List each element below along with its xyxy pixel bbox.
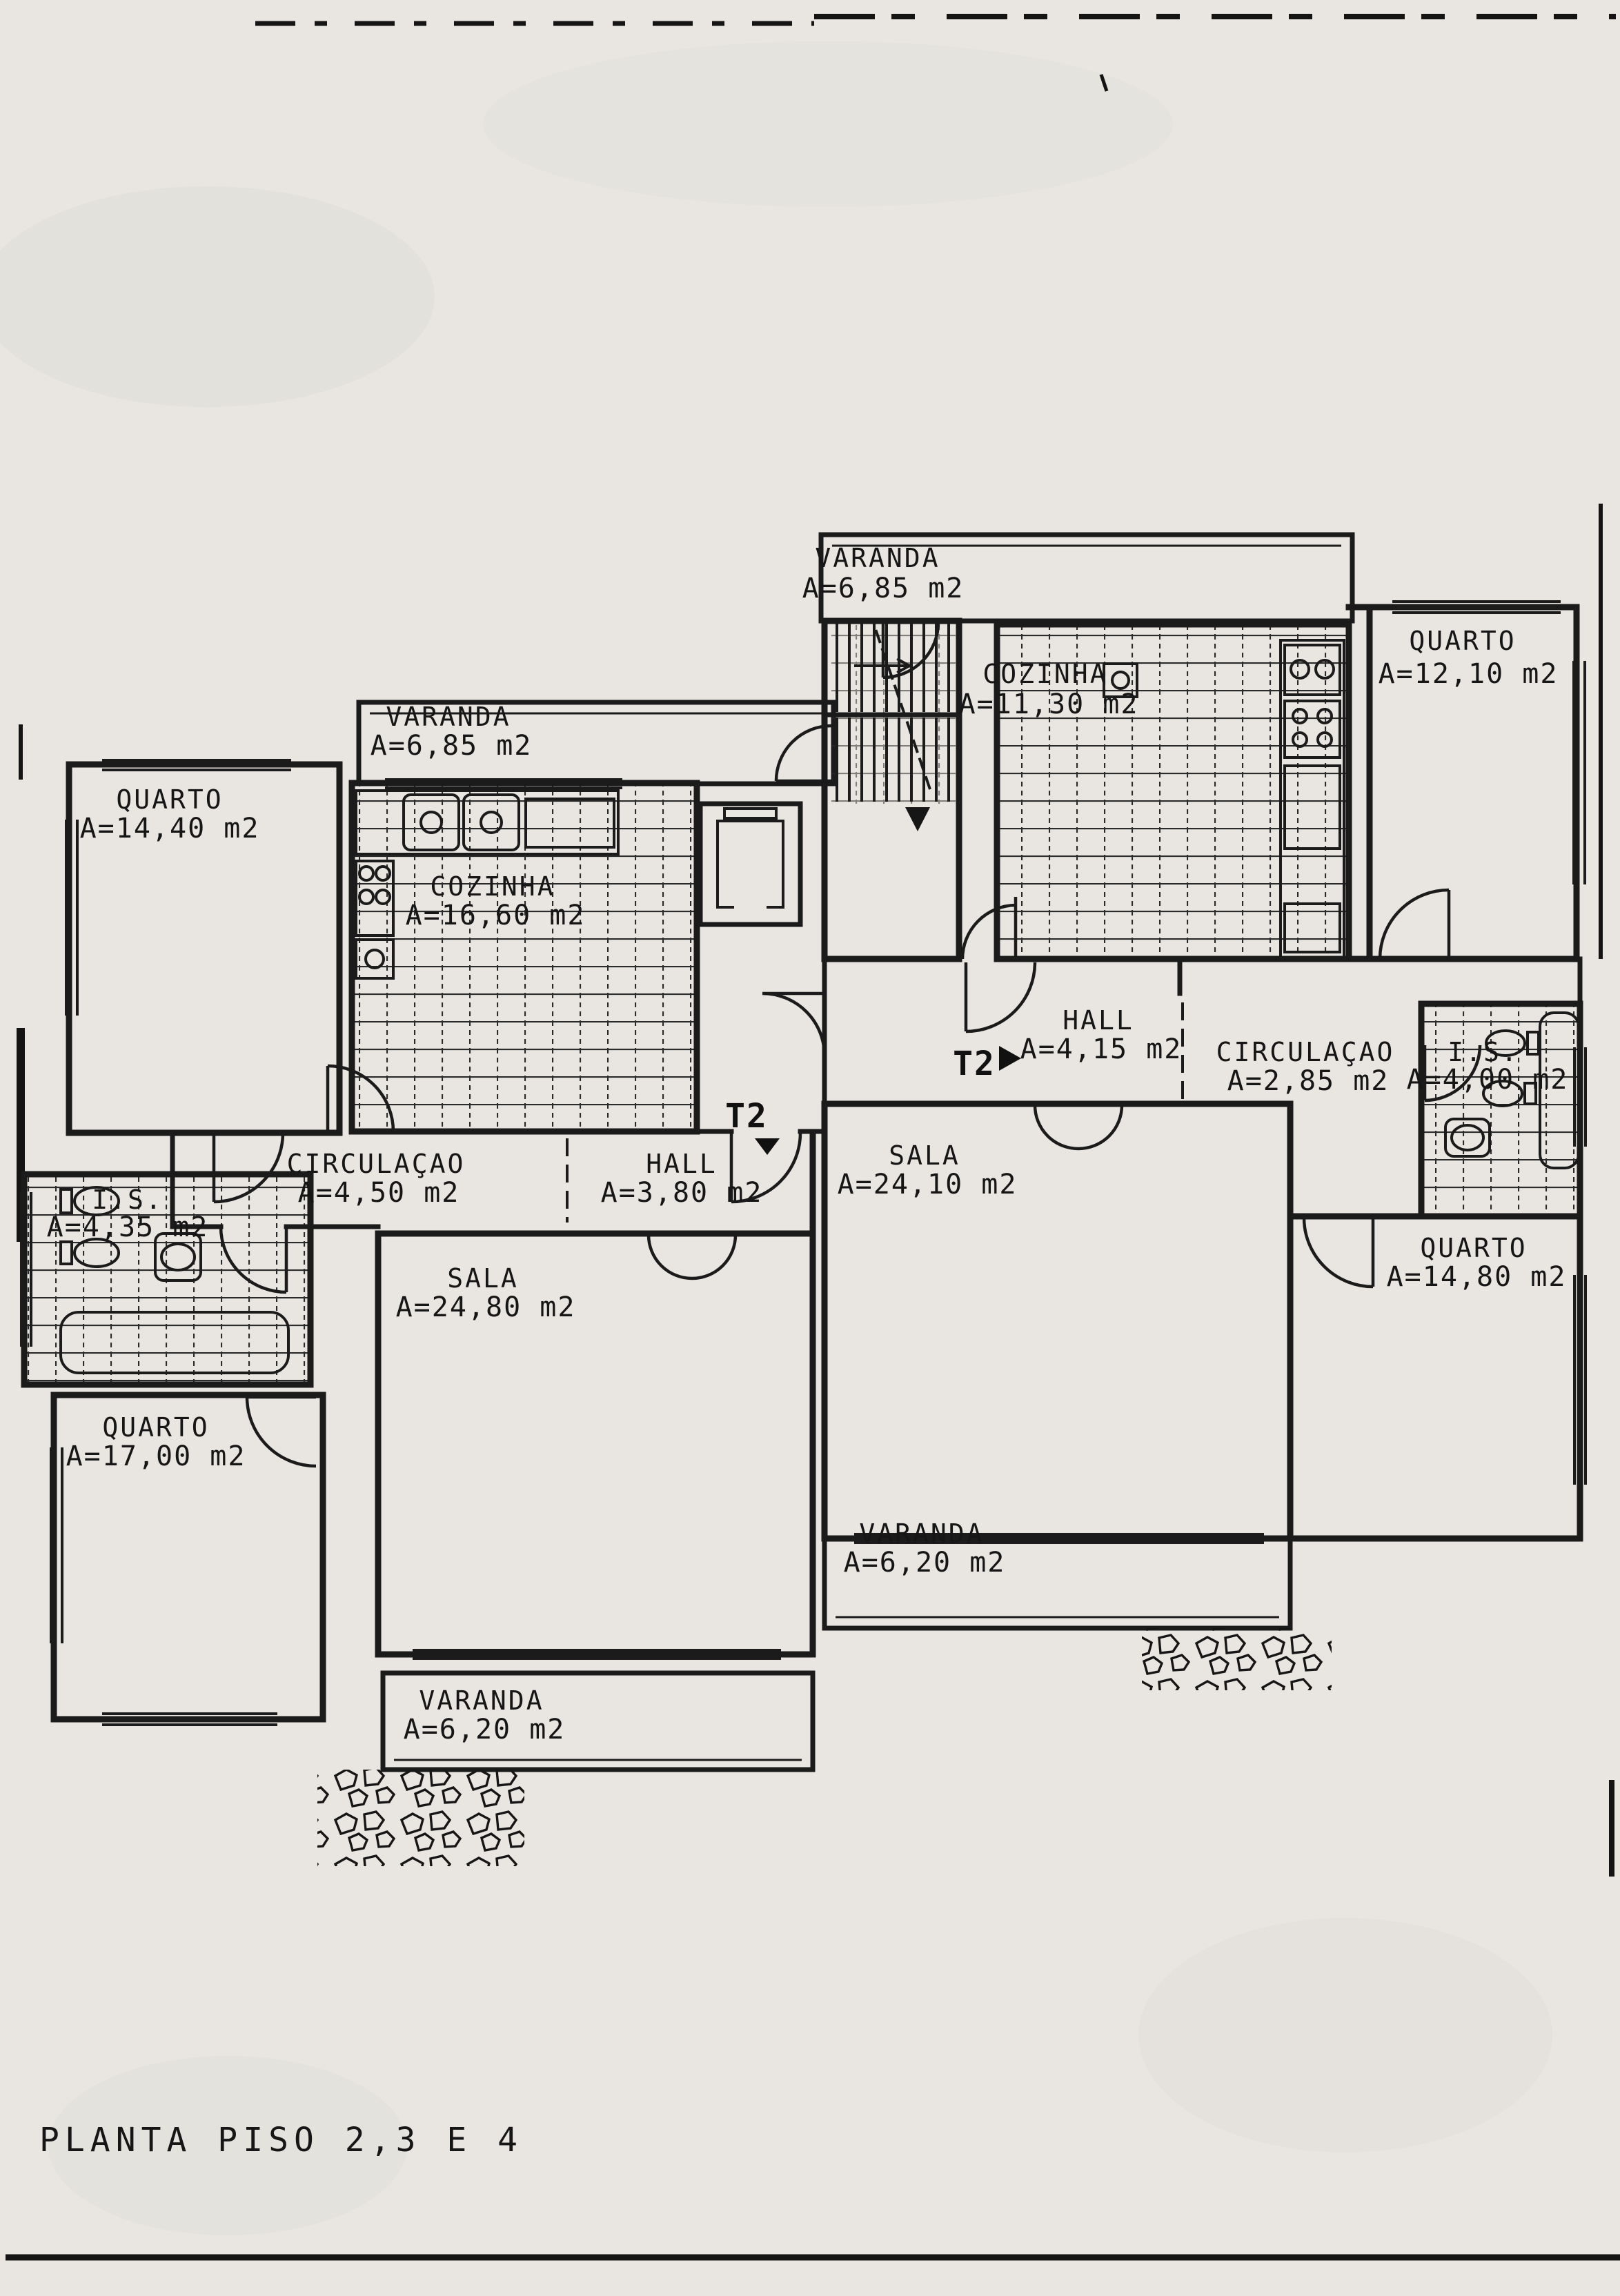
floor-plan-drawing: T2 T2 VARANDA A=6,85 m2 QUARTO A=12,10 m…	[0, 0, 1620, 2296]
room-label-quarto-top-right-area: A=12,10 m2	[1379, 658, 1559, 690]
room-label-is-left-name: I.S.	[92, 1185, 164, 1215]
rubble-texture-left	[317, 1770, 524, 1866]
room-label-circulacao-left-name: CIRCULAÇAO	[287, 1149, 466, 1179]
t2-arrow-right-icon	[999, 1046, 1021, 1071]
room-label-sala-right-area: A=24,10 m2	[838, 1169, 1018, 1200]
walls	[24, 607, 1580, 1719]
room-label-circulacao-right-name: CIRCULAÇAO	[1216, 1037, 1395, 1067]
room-label-varanda-top-area: A=6,85 m2	[802, 573, 965, 604]
room-label-varanda-left-bottom-area: A=6,20 m2	[404, 1714, 566, 1745]
room-label-quarto-left-top-name: QUARTO	[116, 784, 223, 815]
room-label-quarto-left-bottom-name: QUARTO	[102, 1412, 209, 1443]
entry-door-right	[966, 962, 1035, 1031]
room-label-varanda-left-bottom-name: VARANDA	[419, 1685, 544, 1716]
room-label-varanda-right-bottom-area: A=6,20 m2	[844, 1547, 1006, 1578]
room-label-circulacao-right-area: A=2,85 m2	[1227, 1065, 1390, 1097]
room-label-sala-left-name: SALA	[447, 1263, 519, 1294]
room-label-quarto-left-bottom-area: A=17,00 m2	[66, 1441, 246, 1472]
room-label-varanda-right-bottom-name: VARANDA	[859, 1518, 984, 1549]
room-label-sala-right-name: SALA	[889, 1140, 960, 1171]
room-label-is-right-area: A=4,00 m2	[1407, 1064, 1569, 1096]
t2-marker-right-label: T2	[953, 1045, 996, 1083]
room-label-quarto-left-top-area: A=14,40 m2	[80, 813, 260, 844]
room-label-quarto-right-bottom-name: QUARTO	[1420, 1233, 1527, 1263]
room-label-hall-right-name: HALL	[1063, 1005, 1134, 1036]
room-label-varanda-top-name: VARANDA	[815, 543, 940, 573]
stair-down-arrow-icon	[905, 807, 930, 831]
rubble-texture-right	[1142, 1628, 1332, 1690]
t2-marker-left-label: T2	[725, 1097, 768, 1136]
unit-markers: T2 T2	[725, 1045, 1021, 1155]
room-label-sala-left-area: A=24,80 m2	[396, 1291, 576, 1323]
room-label-circulacao-left-area: A=4,50 m2	[298, 1177, 460, 1209]
room-label-hall-left-name: HALL	[646, 1149, 718, 1179]
bath-right-floor	[1421, 1004, 1580, 1216]
room-label-quarto-top-right-name: QUARTO	[1409, 626, 1516, 656]
landing-door	[762, 993, 824, 1056]
room-label-cozinha-left-area: A=16,60 m2	[406, 900, 586, 931]
room-label-quarto-right-bottom-area: A=14,80 m2	[1387, 1261, 1567, 1293]
room-label-is-right-name: I.S.	[1448, 1037, 1519, 1067]
room-label-hall-right-area: A=4,15 m2	[1020, 1033, 1183, 1065]
room-label-is-left-area: A=4,35 m2	[47, 1211, 209, 1243]
room-label-cozinha-right-area: A=11,30 m2	[959, 689, 1139, 720]
room-label-hall-left-area: A=3,80 m2	[601, 1177, 763, 1209]
room-label-cozinha-right-name: COZINHA	[982, 659, 1107, 689]
scanned-floor-plan-page: T2 T2 VARANDA A=6,85 m2 QUARTO A=12,10 m…	[0, 0, 1620, 2296]
room-label-cozinha-left-name: COZINHA	[430, 871, 555, 902]
room-label-varanda-left-name: VARANDA	[386, 702, 511, 732]
room-label-varanda-left-area: A=6,85 m2	[371, 730, 533, 762]
plan-title: PLANTA PISO 2,3 E 4	[39, 2121, 523, 2159]
t2-arrow-down-icon	[755, 1138, 780, 1155]
